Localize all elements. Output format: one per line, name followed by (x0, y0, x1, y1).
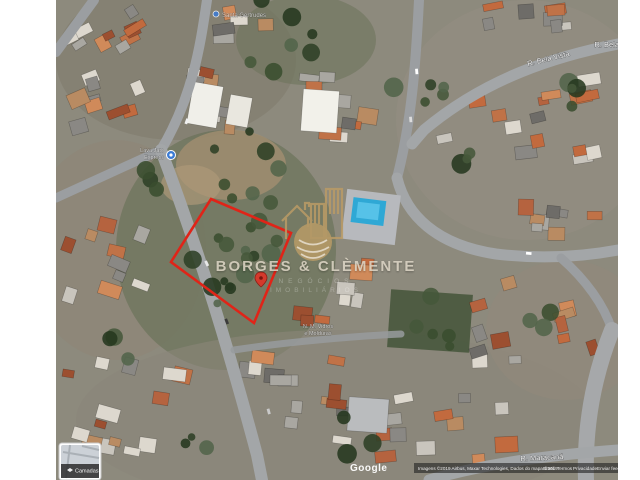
house-roof (490, 331, 510, 349)
car (409, 117, 412, 123)
attribution-link-privacidade[interactable]: Privacidade (573, 466, 597, 471)
tree-canopy (270, 160, 286, 176)
poi-label-line1: Lava Jato (140, 148, 164, 154)
attribution-link-termos[interactable]: Termos (557, 466, 573, 471)
tree-canopy (422, 288, 439, 305)
attribution-link-brasil[interactable]: Brasil (543, 466, 555, 471)
house-roof (138, 437, 157, 454)
logo-subtitle-line1: NEGÓCIOS (278, 276, 353, 285)
house-roof (482, 17, 495, 30)
logo-title: BORGES & CLÈMENTE (216, 258, 417, 275)
tree-canopy (137, 161, 155, 179)
tree-canopy (121, 352, 134, 365)
house-roof (458, 393, 470, 402)
tree-canopy (567, 84, 576, 93)
house-roof (375, 450, 397, 463)
logo-circle (294, 223, 332, 261)
house-roof (270, 375, 291, 385)
house-roof (557, 333, 570, 344)
house-roof (495, 402, 509, 415)
tree-canopy (219, 179, 231, 191)
tree-canopy (257, 142, 275, 160)
logo-subtitle-line2: IMOBILIÁRIOS (270, 285, 362, 294)
tree-canopy (184, 251, 202, 269)
house-roof (587, 211, 602, 220)
tree-canopy (363, 434, 381, 452)
poi-dot-icon[interactable] (213, 11, 219, 17)
tree-canopy (213, 300, 221, 308)
house-roof (284, 416, 298, 429)
tree-canopy (102, 331, 117, 346)
screenshot-stage: Santa Gertrudes Lava Jato Express N. M. … (0, 0, 640, 480)
house-roof (495, 436, 519, 453)
tree-canopy (384, 78, 404, 98)
house-roof (550, 19, 562, 33)
street-label-bela-vista-top: R. Bela Vista (594, 40, 618, 49)
house-roof (518, 4, 534, 20)
tree-canopy (567, 101, 578, 112)
tree-canopy (302, 44, 320, 62)
house-roof (347, 397, 389, 434)
poi-label-line2: e Molduras (304, 331, 331, 337)
house-roof (301, 89, 340, 133)
tree-canopy (271, 235, 283, 247)
tree-canopy (219, 237, 234, 252)
tree-canopy (464, 148, 476, 160)
attribution-credits: Imagens ©2019 Airbus, Maxar Technologies… (418, 465, 558, 471)
pool-building (341, 189, 401, 245)
house-roof (291, 400, 303, 413)
tree-canopy (535, 319, 553, 337)
tree-canopy (438, 82, 449, 93)
house-roof (509, 356, 521, 364)
house-roof (341, 117, 356, 130)
tree-canopy (307, 29, 317, 39)
house-roof (585, 145, 602, 161)
tree-canopy (149, 182, 164, 197)
tree-canopy (188, 433, 196, 441)
house-roof (226, 94, 253, 127)
tree-canopy (445, 342, 454, 351)
tree-canopy (337, 411, 351, 425)
house-roof (546, 205, 560, 219)
layers-label: Camadas (75, 469, 99, 475)
house-roof (338, 95, 352, 109)
tree-canopy (246, 186, 260, 200)
attribution-link-feedback[interactable]: Enviar feedback (597, 466, 618, 471)
house-roof (531, 223, 542, 232)
house-roof (314, 315, 330, 324)
tree-canopy (227, 193, 237, 203)
poi-top-label: Santa Gertrudes (222, 13, 266, 19)
tree-canopy (245, 56, 257, 68)
poi-vidros[interactable]: N. M. Vidros e Molduras (303, 324, 333, 337)
tree-canopy (542, 304, 559, 321)
satellite-map[interactable]: Santa Gertrudes Lava Jato Express N. M. … (56, 0, 618, 480)
attribution-bar: Imagens ©2019 Airbus, Maxar Technologies… (414, 463, 618, 473)
tree-canopy (284, 38, 298, 52)
house-roof (152, 391, 170, 406)
tree-canopy (420, 97, 430, 107)
house-roof (319, 72, 335, 83)
tree-canopy (425, 79, 436, 90)
house-roof (390, 428, 406, 442)
house-roof (251, 350, 275, 365)
tree-canopy (265, 63, 283, 81)
house-roof (162, 367, 186, 382)
right-margin (618, 0, 640, 480)
layers-widget[interactable]: Camadas (59, 443, 101, 480)
tree-canopy (427, 329, 438, 340)
tree-canopy (283, 8, 302, 27)
tree-canopy (225, 283, 236, 294)
tree-canopy (245, 127, 254, 136)
tree-canopy (337, 444, 357, 464)
tree-canopy (409, 320, 423, 334)
house-roof (548, 227, 565, 240)
house-roof (491, 109, 507, 123)
house-roof (416, 441, 435, 456)
car (526, 252, 532, 255)
google-logo[interactable]: Google (350, 463, 387, 474)
poi-label-line2: Express (144, 155, 164, 161)
house-roof (573, 145, 587, 157)
house-roof (95, 356, 110, 370)
tree-canopy (181, 439, 191, 449)
tree-canopy (442, 329, 456, 343)
tree-canopy (199, 440, 214, 455)
tree-canopy (210, 144, 219, 153)
house-roof (62, 369, 75, 378)
house-roof (258, 19, 273, 31)
car (415, 69, 418, 75)
house-roof (328, 384, 341, 401)
tree-canopy (263, 195, 278, 210)
poi-label-line1: N. M. Vidros (303, 324, 333, 330)
house-roof (547, 4, 565, 16)
house-roof (518, 199, 534, 215)
left-margin (0, 0, 56, 480)
house-roof (530, 133, 545, 148)
house-roof (504, 120, 522, 135)
